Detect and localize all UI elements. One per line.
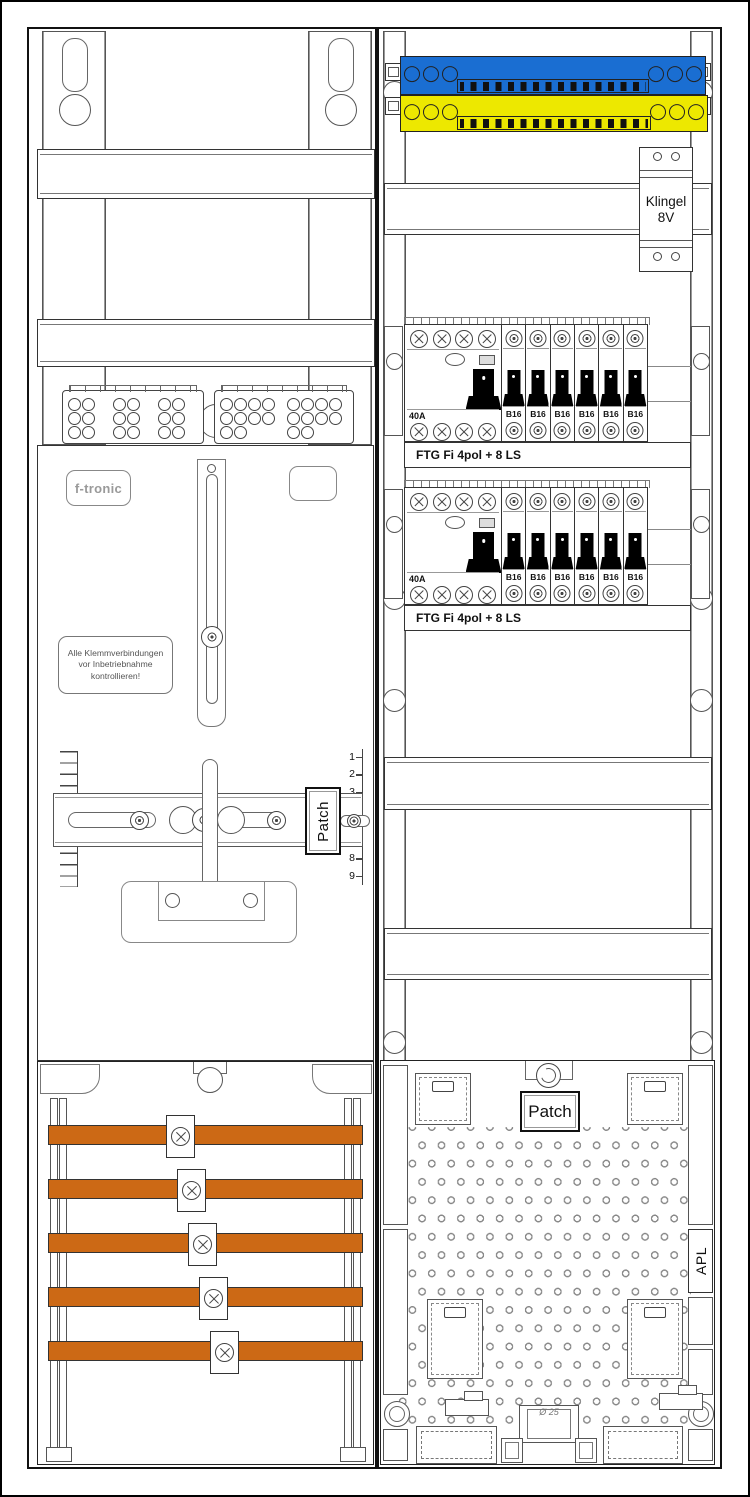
rail-foot [46, 1447, 72, 1462]
bracket-hole [386, 516, 403, 533]
terminal-screw-icon [578, 330, 595, 347]
terminal-hole-icon [248, 398, 261, 411]
terminal-screw-icon [505, 493, 522, 510]
rcd-toggle-icon [473, 369, 494, 397]
busbar-terminals [650, 104, 704, 120]
mounting-screw-icon [536, 1063, 561, 1088]
terminal-screw-icon [602, 585, 619, 602]
breaker-rating-label: B16 [502, 409, 525, 419]
rail-hole [690, 1031, 713, 1054]
terminal-hole-icon [671, 252, 680, 261]
terminal-hole-icon [220, 426, 233, 439]
label-window [479, 518, 495, 528]
pointer-slot [206, 474, 218, 704]
rcd-rating-label: 40A [409, 574, 426, 584]
terminal-screw-icon [578, 493, 595, 510]
row-bracket [691, 326, 710, 436]
terminal-hole-icon [113, 398, 126, 411]
cable-window [121, 881, 297, 943]
breaker-rating-label: B16 [575, 409, 598, 419]
terminal-hole-icon [287, 412, 300, 425]
rcd-toggle-icon [473, 532, 494, 560]
small-clamp [575, 1438, 597, 1463]
terminal-block-right [214, 390, 354, 444]
patch-label-text: Patch [528, 1102, 571, 1122]
terminal-screw-icon [578, 585, 595, 602]
terminal-hole-icon [648, 66, 664, 82]
edge-box [383, 1229, 408, 1395]
terminal-hole-icon [686, 66, 702, 82]
terminal-hole-icon [301, 412, 314, 425]
terminal-hole-icon [82, 426, 95, 439]
transformer-label: Klingel 8V [640, 194, 692, 225]
module-line [407, 512, 499, 513]
transformer-label-line2: 8V [658, 210, 675, 225]
breaker-toggle-icon [629, 370, 642, 395]
terminal-screw-icon [529, 330, 546, 347]
terminal-hole-icon [127, 426, 140, 439]
terminal-hole-icon [423, 66, 439, 82]
mounting-rail-left [42, 31, 106, 445]
cable-window-inner [158, 881, 265, 921]
terminal-hole-icon [667, 66, 683, 82]
screw-terminal-icon [433, 493, 451, 511]
terminal-hole-icon [287, 398, 300, 411]
terminal-group [158, 398, 198, 436]
knockout-large [416, 1426, 497, 1464]
meter-panel: f-tronic Alle Klemmverbindungen vor Inbe… [37, 445, 374, 1061]
terminal-hole-icon [442, 104, 458, 120]
terminal-hole-icon [262, 412, 275, 425]
left-top-section [35, 31, 376, 445]
module-line [640, 240, 692, 241]
clamp-screw-icon [182, 1181, 201, 1200]
wiring-busbar [48, 1341, 363, 1361]
terminal-hole-icon [127, 412, 140, 425]
breaker-rating-label: B16 [551, 572, 574, 582]
terminal-hole-icon [158, 426, 171, 439]
terminal-hole-icon [423, 104, 439, 120]
rail-hole [690, 689, 713, 712]
screw-terminal-icon [455, 330, 473, 348]
pointer-screw-icon [201, 626, 223, 648]
mcb-breaker: B16 [623, 324, 648, 442]
ruler-number: 1 [334, 749, 362, 766]
terminal-hole-icon [68, 398, 81, 411]
busbar-terminals [648, 66, 702, 82]
edge-box [383, 1429, 408, 1461]
mcb-breaker: B16 [501, 324, 526, 442]
module-line [407, 572, 499, 573]
mcb-breaker: B16 [574, 324, 599, 442]
terminal-hole-icon [220, 412, 233, 425]
terminal-screw-icon [554, 422, 571, 439]
screw-terminal-icon [478, 330, 496, 348]
mounting-plate [627, 1073, 683, 1125]
warning-line: kontrollieren! [91, 671, 140, 682]
module-line [640, 170, 692, 171]
terminal-screw-icon [602, 422, 619, 439]
breaker-row-2: 40A B16B16B16B16B16B16 FTG Fi 4pol + 8 L… [380, 487, 714, 633]
terminal-group [220, 398, 282, 436]
rcd-rating-label: 40A [409, 411, 426, 421]
mounting-plate [427, 1299, 483, 1379]
terminal-block-left [62, 390, 204, 444]
blank-plate [289, 466, 337, 501]
terminal-hole-icon [220, 398, 233, 411]
din-rail [37, 319, 375, 367]
apl-label-text: APL [693, 1247, 709, 1275]
transformer-terminals [640, 152, 692, 161]
cable-clamp [445, 1399, 489, 1416]
rcd-screws-top [410, 330, 496, 348]
mcb-group: B16B16B16B16B16B16 [502, 487, 648, 605]
terminal-screw-icon [529, 493, 546, 510]
terminal-hole-icon [172, 426, 185, 439]
terminal-hole-icon [404, 104, 420, 120]
edge-box [383, 1065, 408, 1225]
right-bottom-section: Patch APL Ø 25 [380, 1060, 715, 1465]
mcb-breaker: B16 [550, 487, 575, 605]
transformer-terminals [640, 252, 692, 261]
breaker-toggle-icon [580, 370, 593, 395]
bracket-screw-icon [130, 811, 149, 830]
wiring-busbar [48, 1287, 363, 1307]
module-line [640, 177, 692, 178]
screw-terminal-icon [478, 423, 496, 441]
meter-cabinet-drawing: f-tronic Alle Klemmverbindungen vor Inbe… [0, 0, 750, 1497]
breaker-toggle-icon [604, 370, 617, 395]
corner-screw-icon [384, 1401, 410, 1427]
terminal-group [68, 398, 108, 436]
corner-bracket [312, 1064, 372, 1094]
module-line [407, 349, 499, 350]
ruler-number: 2 [334, 766, 362, 783]
terminal-hole-icon [301, 398, 314, 411]
bracket-vertical-slot [202, 759, 218, 889]
warning-label: Alle Klemmverbindungen vor Inbetriebnahm… [58, 636, 173, 694]
bracket-hole [693, 516, 710, 533]
terminal-hole-icon [172, 412, 185, 425]
terminal-screw-icon [505, 585, 522, 602]
bracket-hole [693, 353, 710, 370]
busbar-clamp [166, 1115, 195, 1158]
terminal-screw-icon [602, 330, 619, 347]
test-button-icon [445, 516, 465, 529]
rail-foot [340, 1447, 366, 1462]
terminal-hole-icon [404, 66, 420, 82]
wiring-busbar [48, 1179, 363, 1199]
terminal-hole-icon [172, 398, 185, 411]
module-line [640, 247, 692, 248]
pointer-hole [207, 464, 216, 473]
terminal-hole-icon [234, 412, 247, 425]
mounting-rail-right [308, 31, 372, 445]
terminal-hole-icon [671, 152, 680, 161]
mcb-breaker: B16 [525, 487, 550, 605]
mcb-breaker: B16 [550, 324, 575, 442]
patch-field-label-left: Patch [305, 787, 341, 855]
patch-panel-label: Patch [520, 1091, 580, 1132]
breaker-toggle-icon [531, 370, 544, 395]
mounting-plate [627, 1299, 683, 1379]
mcb-breaker: B16 [623, 487, 648, 605]
small-clamp [501, 1438, 523, 1463]
top-hole [197, 1067, 223, 1093]
wiring-busbar [48, 1125, 363, 1145]
edge-box [688, 1065, 713, 1225]
screw-terminal-icon [455, 586, 473, 604]
screw-terminal-icon [455, 493, 473, 511]
breaker-toggle-icon [556, 533, 569, 558]
busbar-teeth [457, 79, 649, 93]
row-bracket [384, 489, 403, 599]
plate-tab [644, 1307, 666, 1318]
cabinet-frame: f-tronic Alle Klemmverbindungen vor Inbe… [27, 27, 722, 1469]
din-rail [37, 149, 375, 199]
plate-tab [644, 1081, 666, 1092]
clamp-screw-icon [193, 1235, 212, 1254]
mcb-breaker: B16 [525, 324, 550, 442]
bell-transformer: Klingel 8V [639, 147, 693, 272]
busbar-terminals [404, 104, 458, 120]
terminal-hole-icon [248, 412, 261, 425]
rcd-screws-bottom [410, 423, 496, 441]
ruler-number: 9 [334, 868, 362, 885]
bracket-screw-icon [267, 811, 286, 830]
screw-terminal-icon [410, 586, 428, 604]
screw-terminal-icon [410, 330, 428, 348]
mounting-plate [415, 1073, 471, 1125]
busbar-blue [400, 56, 706, 95]
breaker-rating-label: B16 [599, 409, 622, 419]
terminal-screw-icon [627, 585, 644, 602]
breaker-rating-label: B16 [526, 572, 549, 582]
rcd-breaker: 40A [404, 487, 502, 605]
corner-bracket [40, 1064, 100, 1094]
terminal-lugs [69, 385, 197, 392]
busbar-yellow [400, 95, 708, 132]
breaker-rating-label: B16 [575, 572, 598, 582]
terminal-screw-icon [554, 585, 571, 602]
busbar-clamp [210, 1331, 239, 1374]
breaker-rating-label: B16 [526, 409, 549, 419]
cable-entry-knockout: Ø 25 [519, 1405, 579, 1443]
breaker-toggle-icon [507, 370, 520, 395]
screw-terminal-icon [433, 586, 451, 604]
right-top-section: Klingel 8V 40A B16B16B16B16B1 [380, 31, 714, 1061]
terminal-screw-icon [505, 330, 522, 347]
terminal-screw-icon [602, 493, 619, 510]
clamp-screw-icon [171, 1127, 190, 1146]
bracket-hole [217, 806, 245, 834]
rail-hole [383, 689, 406, 712]
screw-terminal-icon [410, 423, 428, 441]
wiring-busbar [48, 1233, 363, 1253]
din-rail-empty [384, 757, 712, 810]
rail-slot [328, 38, 354, 92]
breaker-row-1: 40A B16B16B16B16B16B16 FTG Fi 4pol + 8 L… [380, 324, 714, 470]
rail-hole [325, 94, 357, 126]
screw-terminal-icon [433, 330, 451, 348]
warning-line: Alle Klemmverbindungen [68, 648, 164, 659]
circuit-label-strip: FTG Fi 4pol + 8 LS [404, 605, 691, 631]
label-window [479, 355, 495, 365]
rail-stub [648, 366, 691, 402]
patch-label-text: Patch [315, 801, 332, 842]
row-bracket [691, 489, 710, 599]
terminal-hole-icon [158, 412, 171, 425]
bracket-hole [386, 353, 403, 370]
terminal-hole-icon [82, 398, 95, 411]
knockout-large [603, 1426, 683, 1464]
meter-pointer-bar [197, 459, 226, 727]
mcb-breaker: B16 [574, 487, 599, 605]
breaker-rating-label: B16 [599, 572, 622, 582]
screw-terminal-icon [478, 493, 496, 511]
breaker-toggle-icon [604, 533, 617, 558]
mcb-breaker: B16 [598, 487, 623, 605]
terminal-screw-icon [554, 493, 571, 510]
terminal-hole-icon [669, 104, 685, 120]
breaker-rating-label: B16 [624, 572, 647, 582]
breaker-toggle-icon [580, 533, 593, 558]
terminal-hole-icon [287, 426, 300, 439]
mcb-breaker: B16 [598, 324, 623, 442]
warning-line: vor Inbetriebnahme [78, 659, 152, 670]
terminal-hole-icon [68, 412, 81, 425]
clamp-screw-icon [204, 1289, 223, 1308]
terminal-hole-icon [329, 398, 342, 411]
terminal-hole-icon [315, 412, 328, 425]
apl-label: APL [688, 1229, 713, 1293]
terminal-screw-icon [627, 422, 644, 439]
brand-label-plate: f-tronic [66, 470, 131, 506]
rcd-screws-top [410, 493, 496, 511]
busbar-clamp [199, 1277, 228, 1320]
screw-terminal-icon [478, 586, 496, 604]
terminal-screw-icon [505, 422, 522, 439]
transformer-label-line1: Klingel [646, 194, 687, 209]
test-button-icon [445, 353, 465, 366]
terminal-hole-icon [653, 252, 662, 261]
screw-terminal-icon [455, 423, 473, 441]
terminal-hole-icon [329, 412, 342, 425]
strip-label-text: FTG Fi 4pol + 8 LS [416, 448, 521, 462]
busbar-terminals [404, 66, 458, 82]
breaker-rating-label: B16 [551, 409, 574, 419]
circuit-label-strip: FTG Fi 4pol + 8 LS [404, 442, 691, 468]
wiring-busbar-field [48, 1125, 363, 1417]
terminal-hole-icon [262, 398, 275, 411]
screw-terminal-icon [433, 423, 451, 441]
window-hole [243, 893, 258, 908]
rcd-breaker: 40A [404, 324, 502, 442]
terminal-screw-icon [627, 493, 644, 510]
breaker-toggle-icon [507, 533, 520, 558]
terminal-screw-icon [578, 422, 595, 439]
terminal-screw-icon [627, 330, 644, 347]
strip-label-text: FTG Fi 4pol + 8 LS [416, 611, 521, 625]
plate-tab [432, 1081, 454, 1092]
mcb-breaker: B16 [501, 487, 526, 605]
rail-slot [62, 38, 88, 92]
terminal-screw-icon [529, 585, 546, 602]
rail-hole [383, 1031, 406, 1054]
perforated-mounting-plate [393, 1127, 691, 1427]
terminal-hole-icon [653, 152, 662, 161]
bracket-screw-icon [347, 814, 361, 828]
terminal-screw-icon [554, 330, 571, 347]
clamp-screw-icon [215, 1343, 234, 1362]
row-bracket [384, 326, 403, 436]
edge-box [688, 1297, 713, 1345]
edge-box [688, 1429, 713, 1461]
busbar-teeth [457, 116, 651, 130]
screw-terminal-icon [410, 493, 428, 511]
window-hole [165, 893, 180, 908]
terminal-hole-icon [158, 398, 171, 411]
module-line [407, 409, 499, 410]
mcb-group: B16B16B16B16B16B16 [502, 324, 648, 442]
breaker-toggle-icon [556, 370, 569, 395]
knockout-diameter-label: Ø 25 [520, 1407, 578, 1417]
rcd-screws-bottom [410, 586, 496, 604]
terminal-group [287, 398, 349, 436]
terminal-hole-icon [650, 104, 666, 120]
left-bottom-section [37, 1061, 374, 1465]
terminal-hole-icon [113, 412, 126, 425]
breaker-rating-label: B16 [502, 572, 525, 582]
din-rail-empty [384, 928, 712, 980]
busbar-clamp [188, 1223, 217, 1266]
terminal-hole-icon [113, 426, 126, 439]
terminal-hole-icon [315, 398, 328, 411]
terminal-hole-icon [234, 426, 247, 439]
terminal-hole-icon [127, 398, 140, 411]
rail-stub [648, 529, 691, 565]
plate-tab [444, 1307, 466, 1318]
terminal-screw-icon [529, 422, 546, 439]
terminal-hole-icon [442, 66, 458, 82]
terminal-hole-icon [688, 104, 704, 120]
brand-label: f-tronic [75, 481, 122, 496]
terminal-hole-icon [68, 426, 81, 439]
breaker-toggle-icon [531, 533, 544, 558]
busbar-clamp [177, 1169, 206, 1212]
terminal-lugs [221, 385, 347, 392]
cable-clamp [659, 1393, 703, 1410]
breaker-toggle-icon [629, 533, 642, 558]
terminal-hole-icon [301, 426, 314, 439]
terminal-group [113, 398, 153, 436]
terminal-hole-icon [82, 412, 95, 425]
rail-hole [59, 94, 91, 126]
breaker-rating-label: B16 [624, 409, 647, 419]
terminal-hole-icon [234, 398, 247, 411]
